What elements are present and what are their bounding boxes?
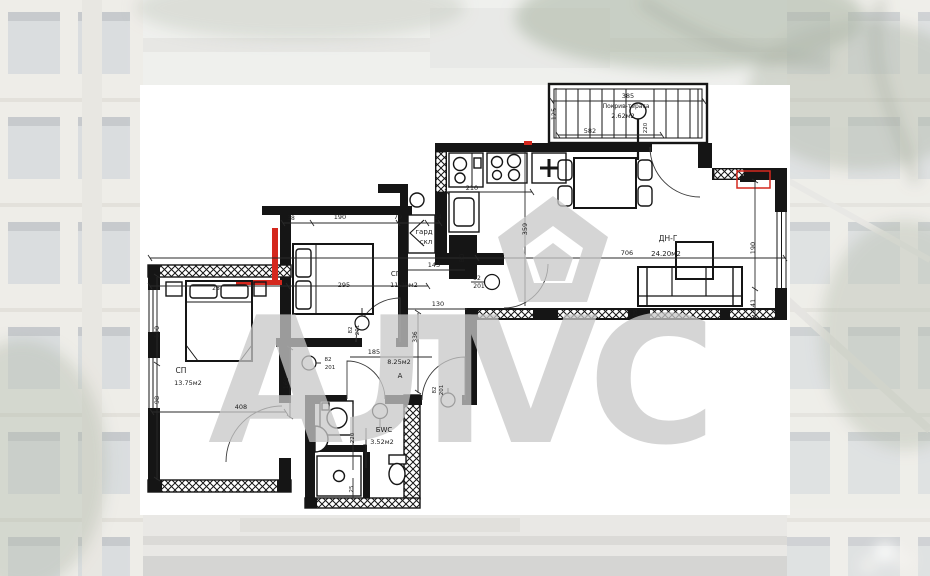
terrace-area: 2.62м2 (611, 112, 635, 120)
hatched-wall-kitchen (436, 152, 446, 192)
dim-bath-220: 220 (350, 432, 356, 443)
dim-sofa-25: 25 (633, 309, 639, 316)
dim-169: 169 (282, 377, 290, 389)
switch-82b: 82 (325, 357, 332, 363)
dim-terrace-125: 125 (550, 108, 558, 120)
dim-terrace-385: 385 (622, 92, 634, 100)
watermark-letter-c: С (588, 281, 716, 484)
dim-295: 295 (338, 281, 350, 289)
dim-bath-25: 25 (349, 485, 355, 492)
hatched-wall-leftbed-top (148, 265, 291, 277)
dim-79: 79 (394, 213, 402, 221)
room-bath-name: БWC (376, 426, 393, 434)
room-bath-area: 3.52м2 (370, 438, 394, 446)
switch-82a: 82 (348, 327, 354, 334)
dim-left-190: 190 (153, 326, 161, 338)
red-tick (524, 141, 532, 145)
dim-336: 336 (412, 331, 419, 343)
room-living-area: 24.20м2 (651, 250, 681, 258)
column-icon (410, 193, 424, 207)
dim-38: 38 (287, 215, 295, 222)
dim-mid-190: 190 (334, 213, 346, 221)
switch-201a: 201 (355, 325, 361, 336)
kitchen-unit-label: ВО (459, 253, 466, 262)
dim-359: 359 (521, 223, 529, 235)
dim-14: 14 (434, 214, 442, 221)
hatched-wall-living-4 (730, 310, 775, 318)
watermark-letter-a: А (208, 281, 343, 484)
dim-130: 130 (432, 300, 444, 308)
red-wall-mark-vertical (272, 228, 278, 284)
room-mid-area: 11.29м2 (390, 281, 418, 289)
dim-185: 185 (368, 348, 380, 356)
closet-line2: скл (420, 238, 433, 246)
red-box-inner-bar (740, 176, 756, 182)
hall-name: А (398, 372, 403, 380)
dim-terrace-220: 220 (643, 122, 649, 133)
dim-terrace-582: 582 (584, 127, 596, 135)
terrace-label: Покрив-тераса (603, 103, 650, 110)
dim-kitchen-210: 210 (466, 184, 478, 192)
bottom-strip-buildings (143, 515, 787, 576)
dim-706: 706 (621, 249, 633, 257)
room-mid-name: СП (391, 270, 401, 278)
kitchen-sink-icon (449, 153, 483, 187)
switch-92: 92 (473, 275, 481, 282)
hatched-wall-bath-bottom (305, 498, 420, 508)
switch-201c: 201 (439, 385, 445, 396)
switch-201b: 201 (325, 365, 336, 371)
hall-area: 8.25м2 (387, 358, 411, 366)
dim-143: 143 (428, 261, 440, 269)
dim-408: 408 (235, 403, 247, 411)
floor-plan-screenshot: АЛVС 385Покрив-тераса2.62м2125582220210В… (0, 0, 930, 576)
closet-line1: гард (415, 228, 432, 236)
dim-right-190: 190 (749, 242, 757, 254)
kitchen-cross-unit-icon (532, 153, 566, 183)
fridge-icon (449, 192, 479, 232)
dim-left-98: 98 (153, 396, 161, 404)
switch-82c: 82 (432, 387, 438, 394)
switch-92-201: 201 (473, 283, 485, 290)
watermark-letter-v: V (463, 281, 598, 484)
stove-icon (487, 153, 527, 183)
room-living-name: ДН-Г (659, 234, 678, 243)
dim-bath-140: 140 (363, 443, 369, 454)
room-left-name: СП (176, 366, 187, 375)
dim-right-41: 41 (749, 299, 757, 307)
room-left-area: 13.75м2 (174, 379, 202, 387)
dim-28: 28 (212, 285, 220, 292)
